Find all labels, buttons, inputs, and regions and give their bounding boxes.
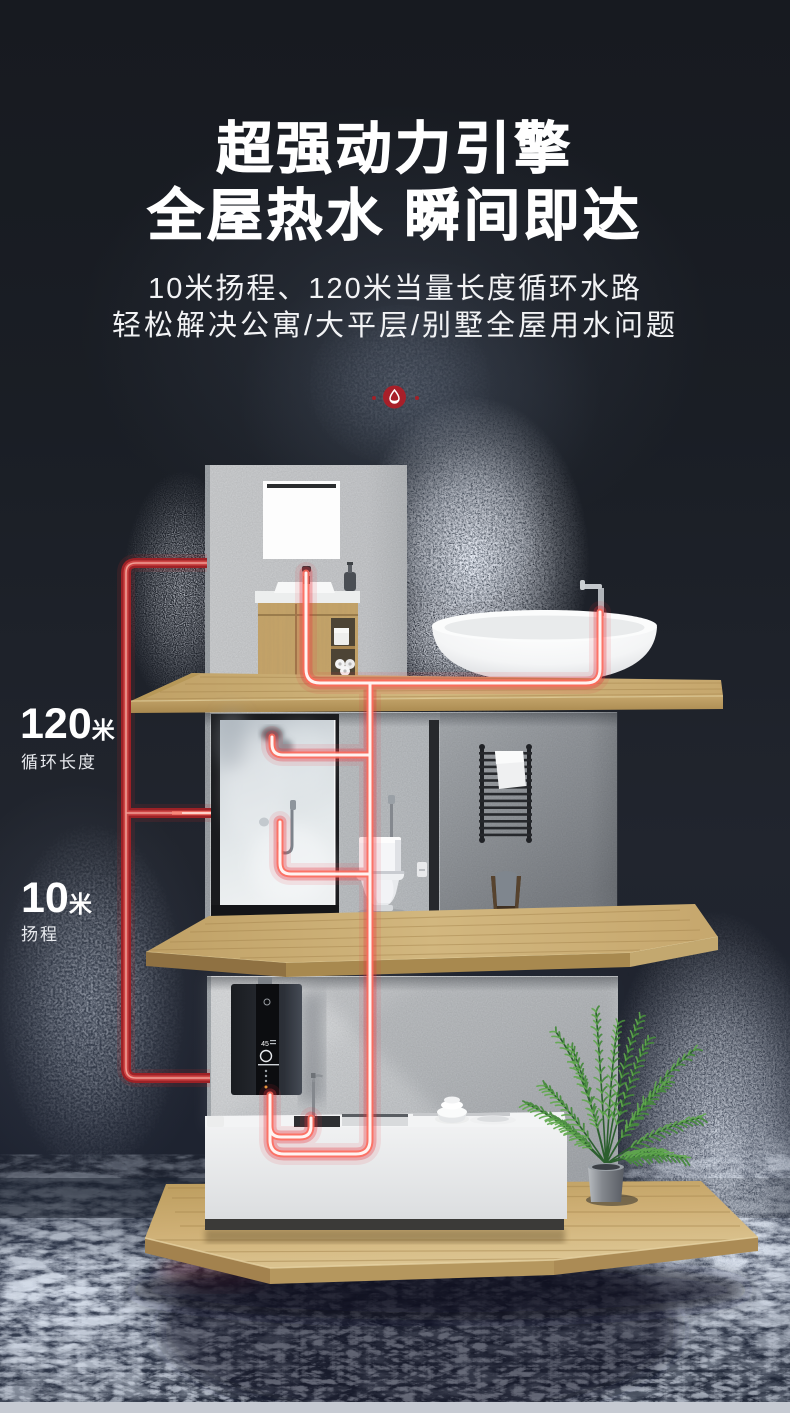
svg-text:45: 45 (261, 1041, 269, 1048)
